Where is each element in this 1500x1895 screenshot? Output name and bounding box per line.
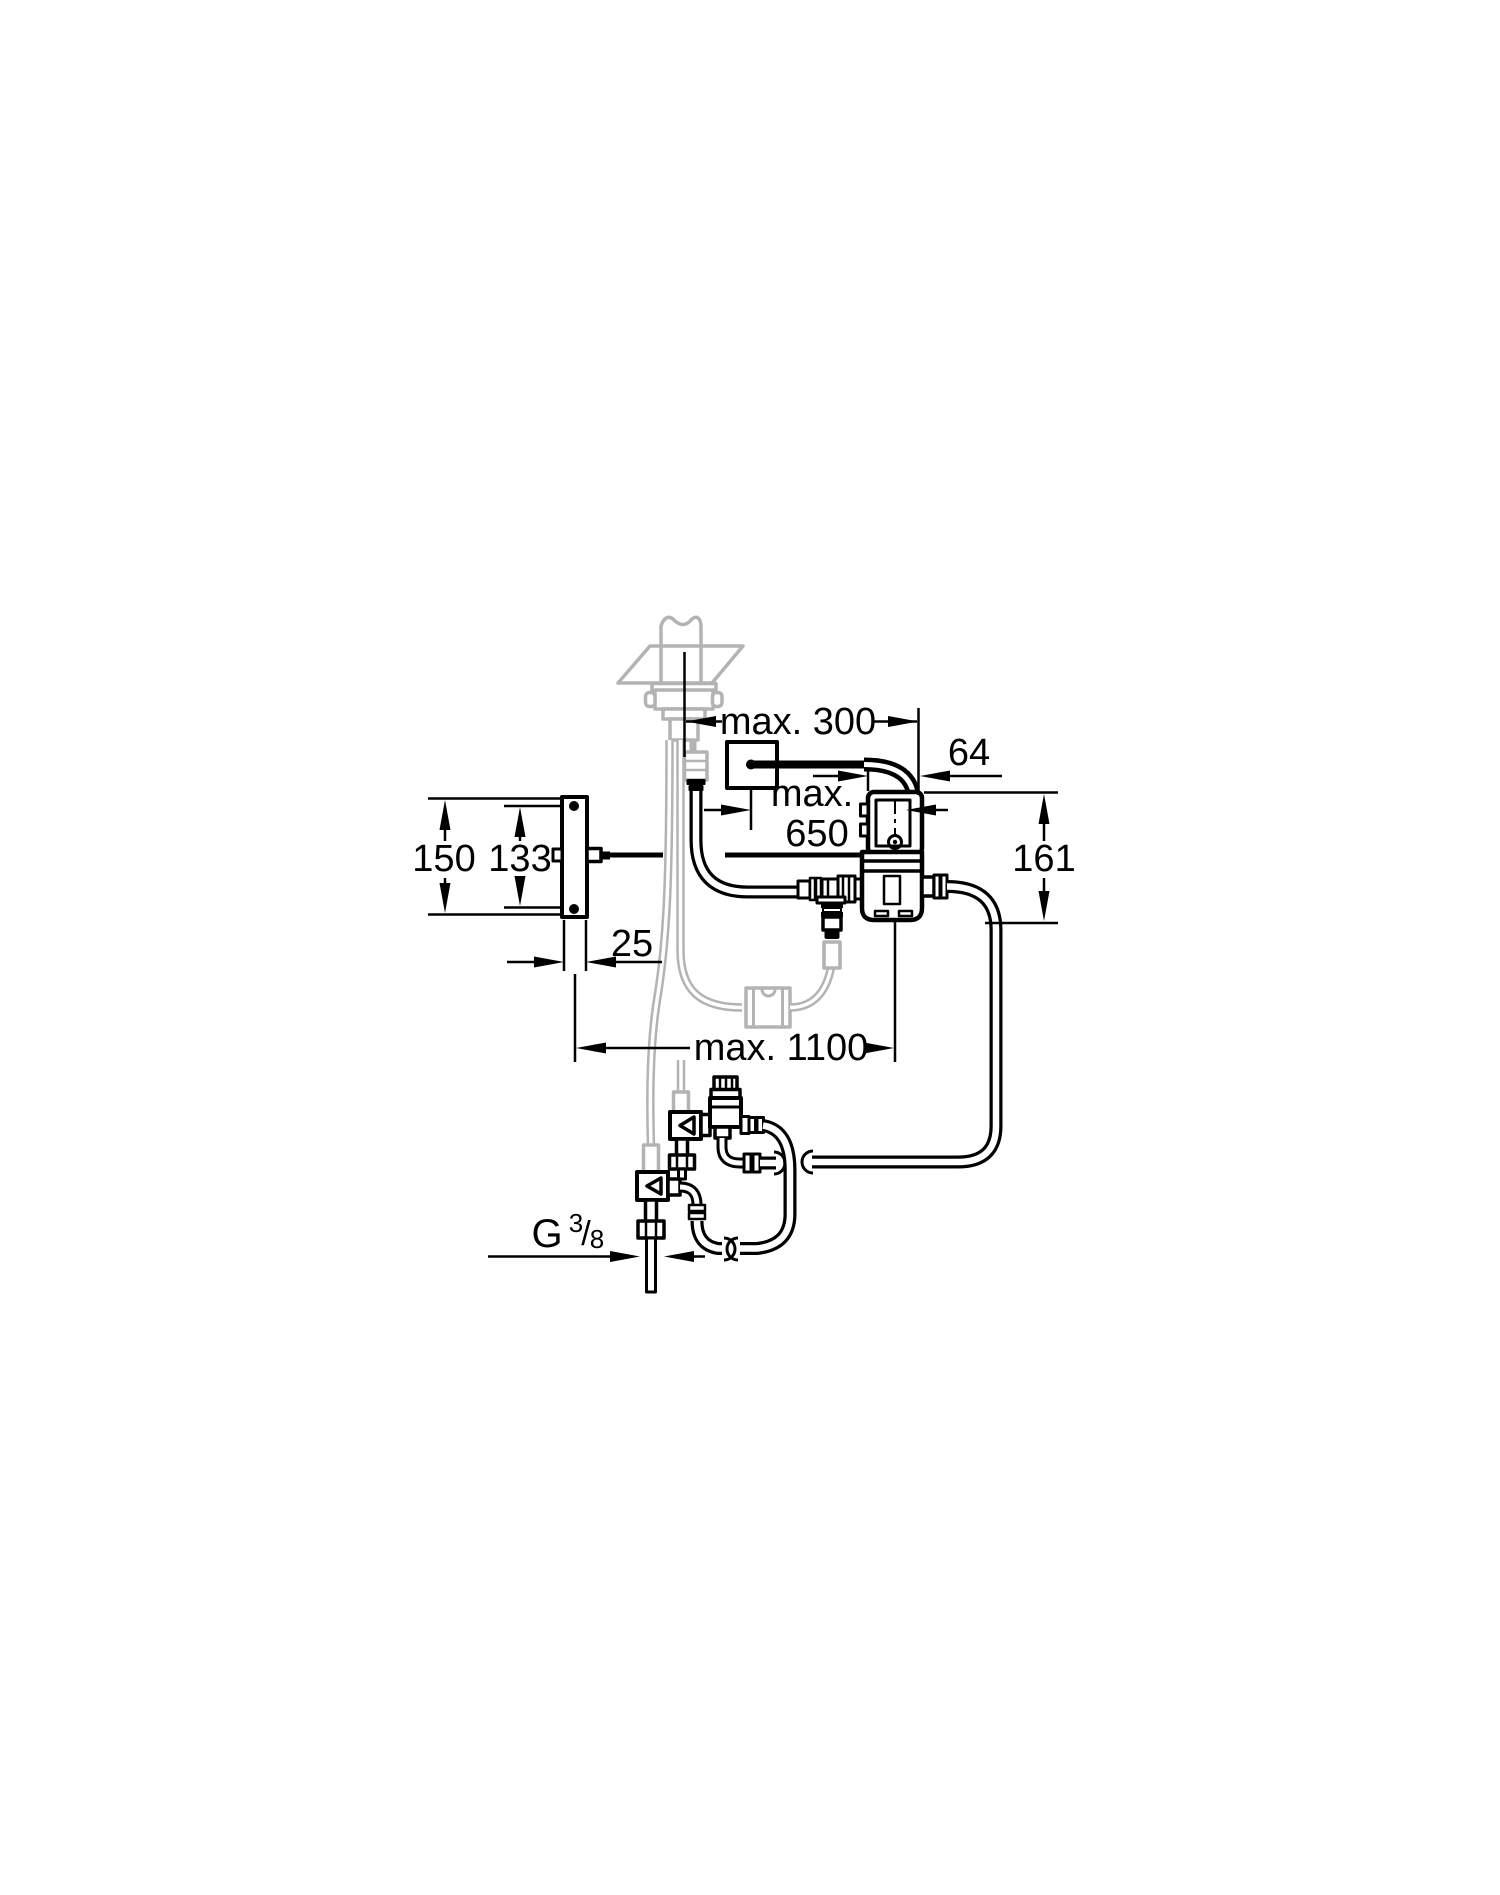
box-clip-bottom	[861, 824, 869, 836]
supply-pipe-g38	[647, 1238, 656, 1292]
box-outlet-rib2	[941, 875, 947, 898]
box-clip-top	[861, 804, 869, 816]
box-outlet-rib1	[934, 875, 940, 898]
box-foot-left	[875, 911, 888, 916]
dim-161-label: 161	[1012, 838, 1075, 880]
dim-25-label: 25	[611, 923, 653, 965]
outlet-hose-cut	[802, 1151, 813, 1173]
dim-133-label: 133	[488, 838, 551, 880]
box-outlet-nut	[922, 877, 934, 896]
dim-max1100-label: max. 1100	[694, 1027, 869, 1069]
angle-valve-upper	[670, 1112, 711, 1179]
valve-outlet-nut	[668, 1179, 680, 1195]
dim-133: 133	[488, 806, 562, 908]
plate-nub	[553, 849, 562, 861]
supply-tube-left	[650, 740, 669, 1146]
tee-hose-ferrule	[824, 942, 840, 968]
dim-max650-label-2: 650	[785, 813, 848, 855]
plug-ring-2	[689, 785, 704, 791]
dim-g38: G 3 / 8	[488, 1208, 705, 1262]
faucet-nut-ear-left	[646, 693, 656, 707]
wall-plate	[553, 797, 610, 917]
tee-fitting	[817, 897, 845, 939]
thread-label-denominator: 8	[590, 1224, 604, 1254]
faucet-shank	[661, 617, 701, 684]
angle-valve-lower	[637, 1172, 735, 1292]
dim-150-label: 150	[412, 838, 475, 880]
plug-ring-1	[687, 779, 706, 785]
countertop-plane	[618, 646, 743, 683]
dim-max650-label-1: max.	[771, 773, 853, 815]
plate-cable-socket	[587, 849, 601, 862]
plate-screw-bottom	[569, 904, 579, 914]
dim-161: 161	[924, 793, 1076, 924]
dim-max300-label: max. 300	[720, 701, 876, 743]
box-foot-right	[899, 911, 912, 916]
plate-cable-plug	[601, 852, 610, 860]
dim-25: 25	[507, 920, 662, 971]
thread-label-G: G	[531, 1212, 562, 1256]
installation-diagram: max. 300 64 max. 650 161	[0, 0, 1500, 1895]
cable-connector-gray	[685, 752, 708, 780]
page: max. 300 64 max. 650 161	[0, 0, 1500, 1895]
dim-64-label: 64	[948, 732, 990, 774]
tube-ferrule-lower	[644, 1145, 659, 1173]
inline-filter	[746, 988, 790, 1027]
plate-screw-top	[569, 801, 579, 811]
